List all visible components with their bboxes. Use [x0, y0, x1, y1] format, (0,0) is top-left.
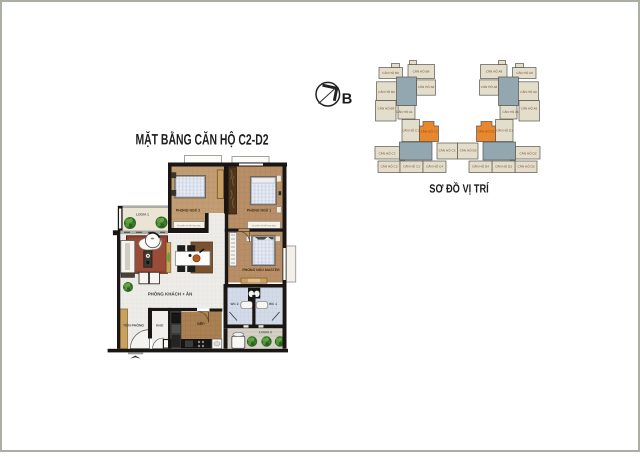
svg-text:LOGIA 1: LOGIA 1 — [136, 212, 149, 216]
svg-text:CĂN HỘ A8: CĂN HỘ A8 — [516, 70, 533, 75]
svg-text:CĂN HỘ D3: CĂN HỘ D3 — [518, 163, 535, 168]
svg-text:CĂN HỘ D1: CĂN HỘ D1 — [496, 127, 513, 132]
svg-text:MẶT BẰNG CĂN HỘ C2-D2: MẶT BẰNG CĂN HỘ C2-D2 — [135, 130, 268, 148]
svg-text:CĂN HỘ C1: CĂN HỘ C1 — [402, 127, 419, 132]
svg-text:CĂN HỘ A1: CĂN HỘ A1 — [396, 109, 413, 114]
svg-text:CĂN HỘ C5: CĂN HỘ C5 — [439, 147, 456, 152]
svg-text:CĂN HỘ C3: CĂN HỘ C3 — [403, 163, 420, 168]
svg-text:CĂN HỘ A0: CĂN HỘ A0 — [520, 89, 537, 94]
svg-text:CĂN HỘ C2: CĂN HỘ C2 — [379, 150, 396, 155]
svg-text:PHONG NGỦ 1: PHONG NGỦ 1 — [247, 207, 272, 212]
svg-text:CĂN HỘ C4: CĂN HỘ C4 — [426, 163, 443, 168]
svg-text:WC 1: WC 1 — [269, 302, 277, 306]
svg-text:PHÒNG KHÁCH + ĂN: PHÒNG KHÁCH + ĂN — [148, 291, 193, 296]
svg-text:PHONG NGỦ 2: PHONG NGỦ 2 — [176, 207, 201, 212]
svg-text:CĂN HỘ D5: CĂN HỘ D5 — [460, 147, 477, 152]
svg-text:CĂN HỘ D4: CĂN HỘ D4 — [472, 163, 489, 168]
svg-text:WC 2: WC 2 — [231, 302, 239, 306]
svg-text:CĂN HỘ A8: CĂN HỘ A8 — [486, 68, 503, 73]
svg-text:tủ quần áo kết hợp bàn: tủ quần áo kết hợp bàn — [252, 224, 276, 227]
svg-text:LOGIA 2: LOGIA 2 — [259, 330, 272, 334]
svg-text:PHONG NGỦ MASTER: PHONG NGỦ MASTER — [242, 267, 280, 272]
svg-text:CĂN HỘ D2: CĂN HỘ D2 — [520, 150, 537, 155]
svg-text:CĂN HỘ A8: CĂN HỘ A8 — [418, 84, 435, 89]
svg-text:CĂN HỘ B8: CĂN HỘ B8 — [382, 70, 399, 75]
svg-text:KHO: KHO — [156, 323, 164, 327]
svg-text:BẾP: BẾP — [197, 321, 205, 326]
svg-text:SƠ ĐỒ VỊ TRÍ: SƠ ĐỒ VỊ TRÍ — [429, 181, 489, 195]
svg-text:tủ quần áo kết hợp bàn: tủ quần áo kết hợp bàn — [177, 224, 201, 227]
svg-text:TIỀN PHÒNG: TIỀN PHÒNG — [123, 322, 144, 327]
svg-text:CĂN HỘ B0: CĂN HỘ B0 — [378, 89, 395, 94]
svg-text:CĂN HỘ B9: CĂN HỘ B9 — [378, 105, 395, 110]
svg-text:B: B — [342, 91, 353, 107]
svg-text:CĂN HỘ A9: CĂN HỘ A9 — [521, 105, 538, 110]
svg-text:CĂN HỘ A1: CĂN HỘ A1 — [502, 109, 519, 114]
svg-text:CĂN HỘ A8: CĂN HỘ A8 — [481, 84, 498, 89]
svg-text:CĂN HỘ D2: CĂN HỘ D2 — [478, 128, 495, 133]
svg-text:CĂN HỘ B8: CĂN HỘ B8 — [413, 68, 430, 73]
svg-text:CĂN HỘ D3: CĂN HỘ D3 — [495, 163, 512, 168]
svg-text:CĂN HỘ C3: CĂN HỘ C3 — [381, 163, 398, 168]
svg-text:CĂN HỘ C2: CĂN HỘ C2 — [421, 128, 438, 133]
